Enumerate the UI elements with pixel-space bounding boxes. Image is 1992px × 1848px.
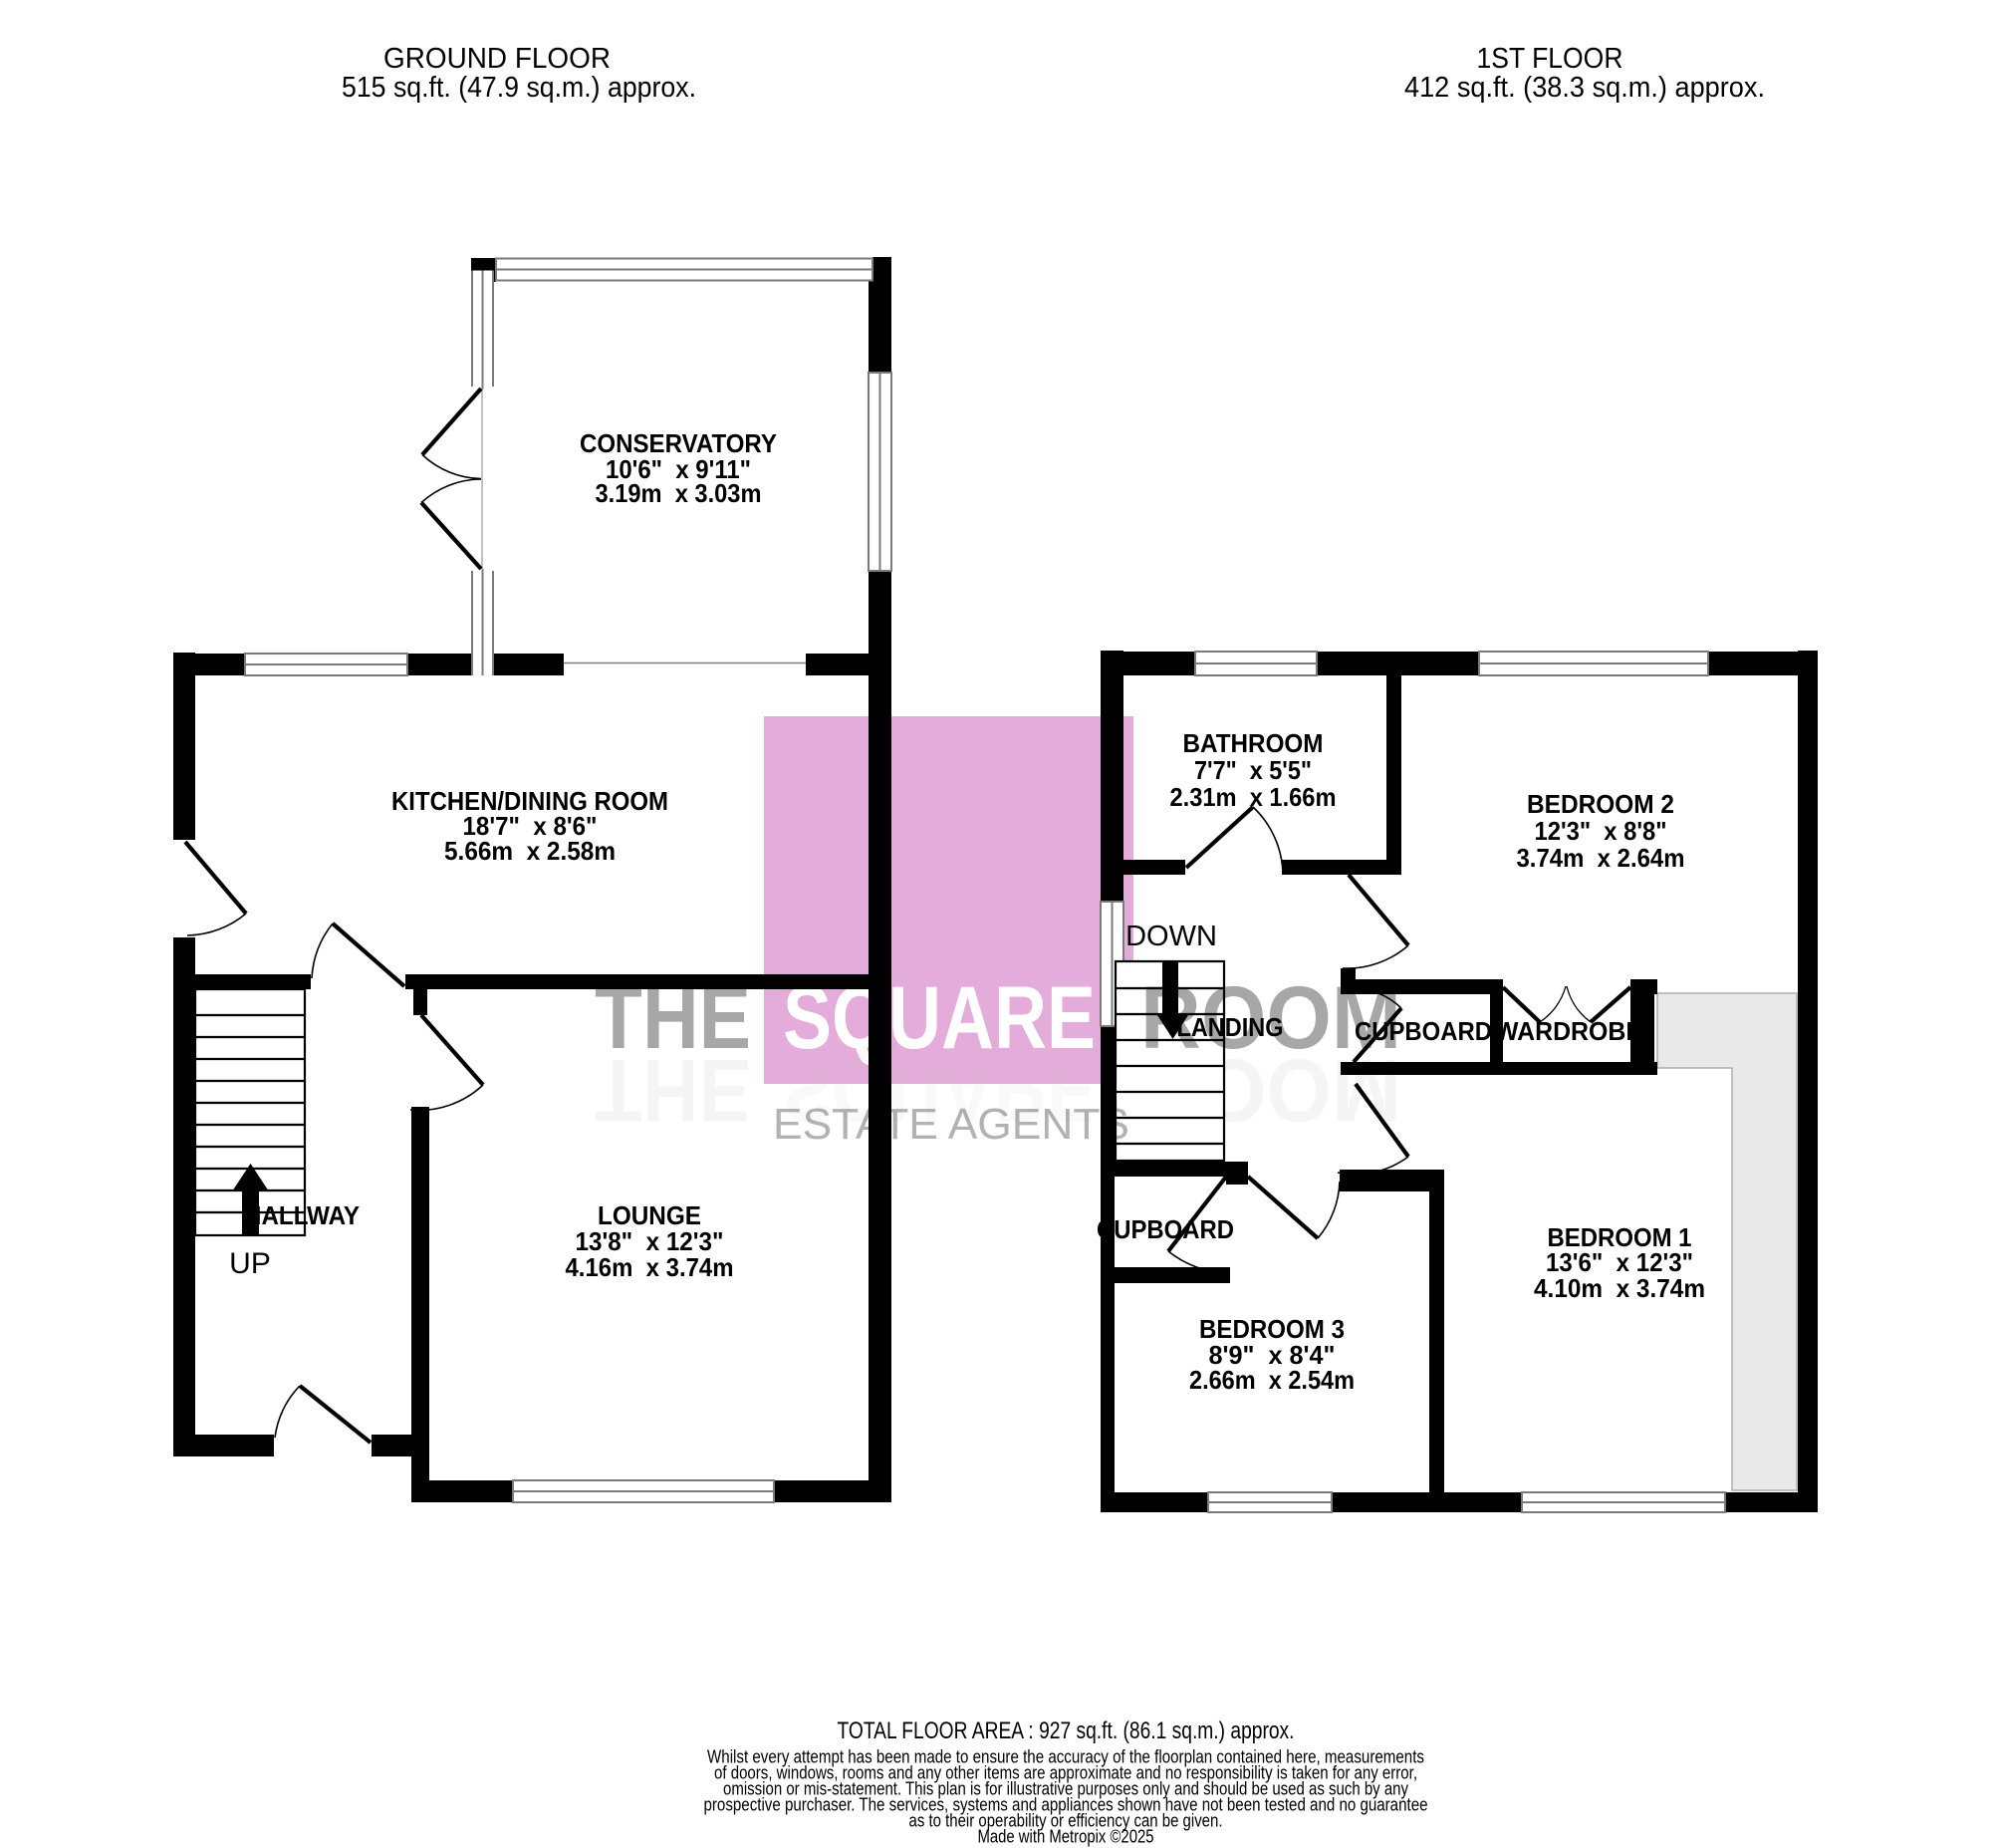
svg-text:3.74m x 2.64m: 3.74m x 2.64m: [1517, 843, 1685, 873]
svg-text:GROUND FLOOR: GROUND FLOOR: [383, 43, 611, 75]
svg-text:THE: THE: [595, 967, 751, 1067]
svg-text:2.31m x 1.66m: 2.31m x 1.66m: [1170, 782, 1337, 812]
svg-text:ROOM: ROOM: [1140, 967, 1401, 1067]
svg-text:5.66m x 2.58m: 5.66m x 2.58m: [444, 836, 616, 866]
svg-text:4.10m x 3.74m: 4.10m x 3.74m: [1534, 1273, 1705, 1303]
svg-text:WARDROBE: WARDROBE: [1495, 1016, 1642, 1046]
svg-text:412 sq.ft. (38.3 sq.m.) approx: 412 sq.ft. (38.3 sq.m.) approx.: [1404, 72, 1765, 104]
svg-text:Made with Metropix ©2025: Made with Metropix ©2025: [978, 1826, 1154, 1847]
svg-text:TOTAL FLOOR AREA : 927 sq.ft.: TOTAL FLOOR AREA : 927 sq.ft. (86.1 sq.m…: [838, 1717, 1295, 1744]
svg-text:12'3" x 8'8": 12'3" x 8'8": [1535, 816, 1667, 846]
svg-text:CUPBOARD: CUPBOARD: [1097, 1214, 1234, 1244]
svg-text:BATHROOM: BATHROOM: [1183, 728, 1324, 758]
svg-text:BEDROOM 2: BEDROOM 2: [1527, 789, 1674, 819]
svg-text:ESTATE AGENTS: ESTATE AGENTS: [773, 1100, 1129, 1149]
svg-text:4.16m x 3.74m: 4.16m x 3.74m: [566, 1252, 734, 1282]
svg-text:7'7" x 5'5": 7'7" x 5'5": [1194, 755, 1312, 785]
svg-text:3.19m x 3.03m: 3.19m x 3.03m: [596, 478, 762, 508]
svg-text:515 sq.ft. (47.9 sq.m.) approx: 515 sq.ft. (47.9 sq.m.) approx.: [342, 72, 696, 104]
svg-text:HALLWAY: HALLWAY: [244, 1200, 360, 1230]
svg-text:2.66m x 2.54m: 2.66m x 2.54m: [1189, 1365, 1355, 1395]
svg-text:DOWN: DOWN: [1125, 921, 1217, 952]
svg-text:UP: UP: [229, 1247, 271, 1280]
svg-text:1ST FLOOR: 1ST FLOOR: [1477, 43, 1623, 75]
